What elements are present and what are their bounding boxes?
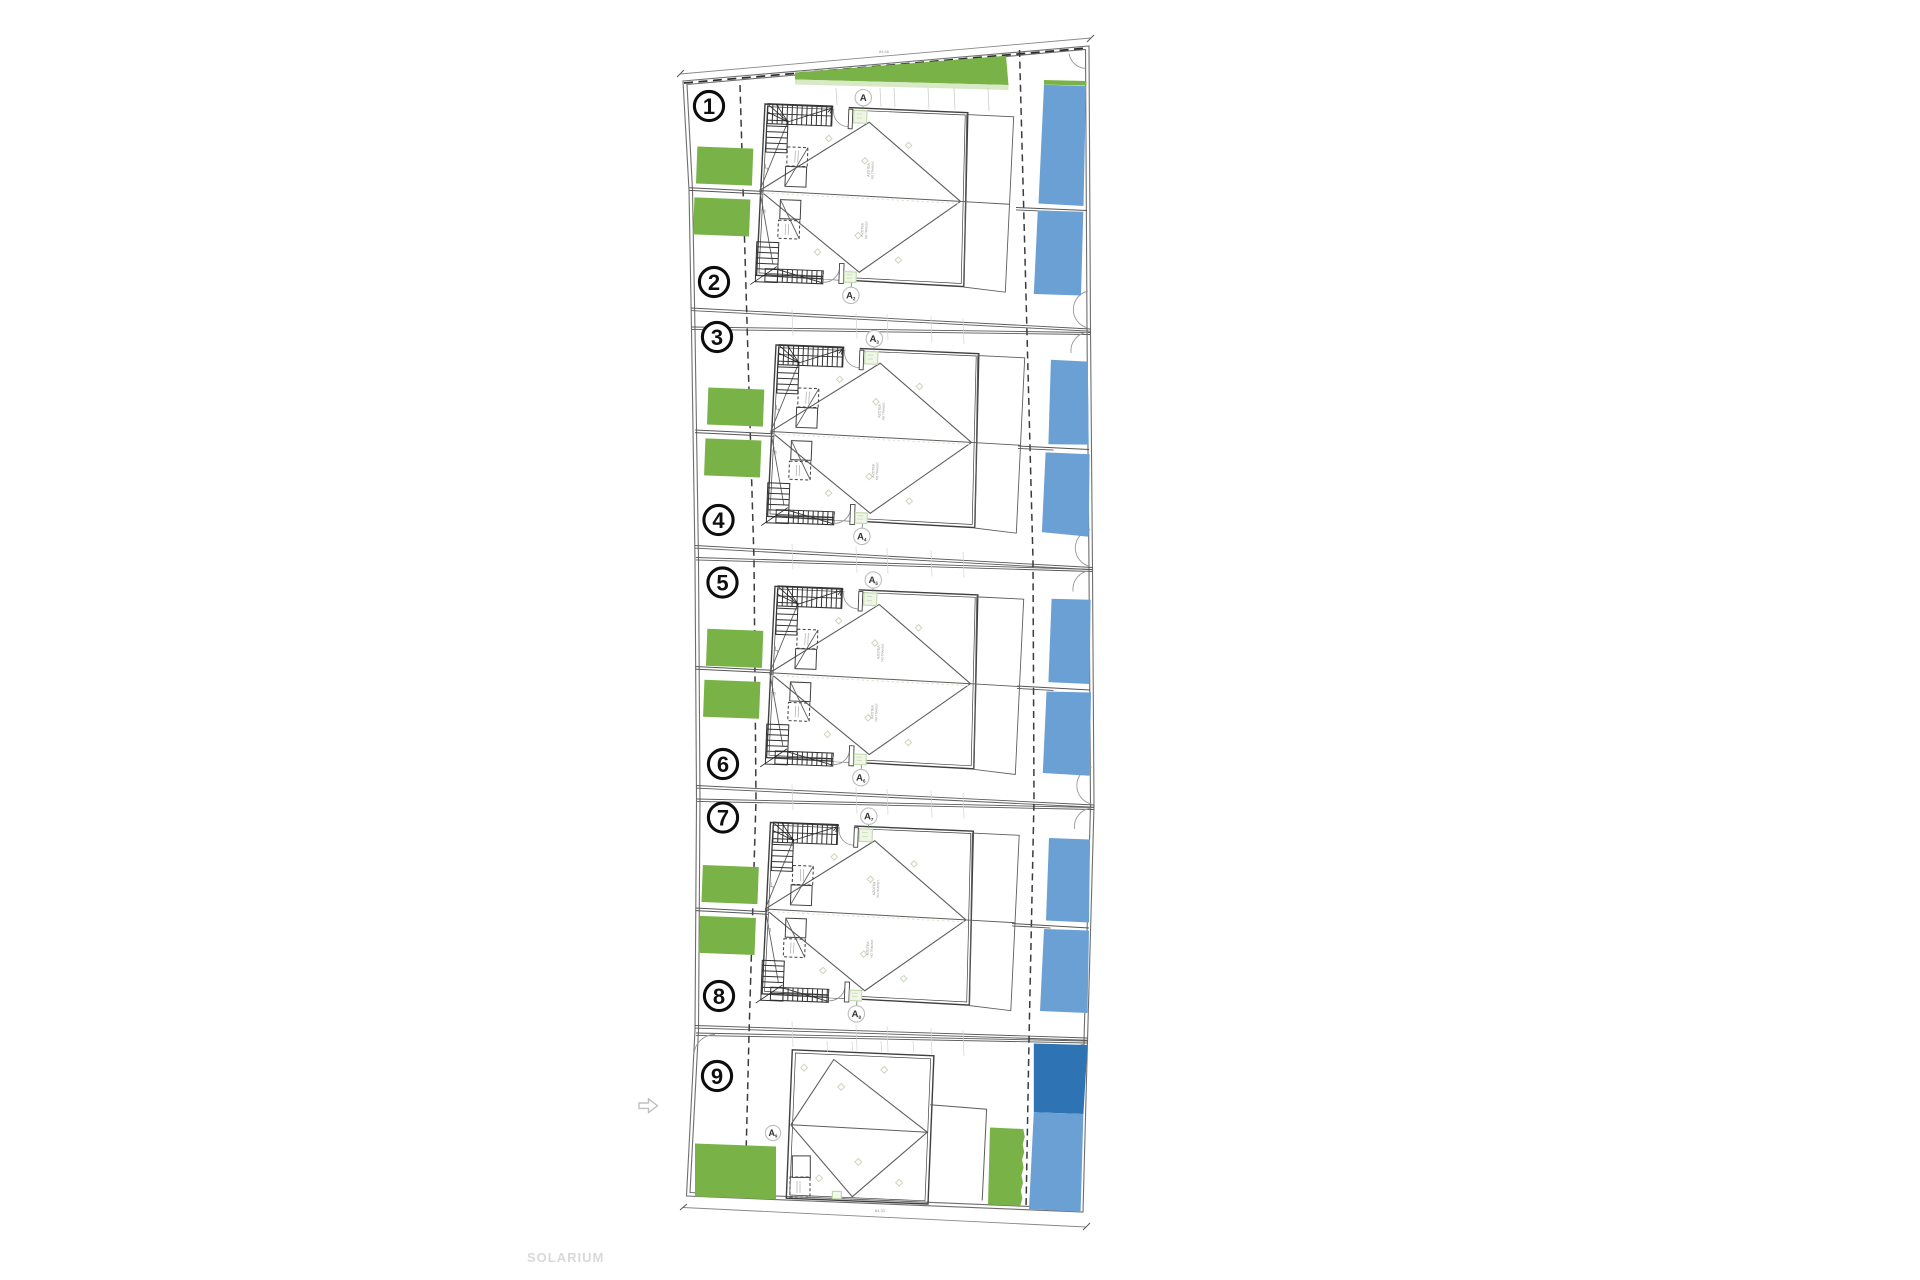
svg-text:1: 1 <box>703 94 715 119</box>
svg-text:NO TRANSIT.: NO TRANSIT. <box>864 220 869 239</box>
svg-text:7: 7 <box>717 805 729 830</box>
svg-text:NO TRANSIT.: NO TRANSIT. <box>875 461 880 480</box>
svg-text:2: 2 <box>708 270 720 295</box>
svg-text:A: A <box>860 93 867 104</box>
svg-text:5: 5 <box>716 570 728 595</box>
svg-text:8: 8 <box>713 984 725 1009</box>
svg-text:84,66: 84,66 <box>879 49 890 54</box>
svg-text:9: 9 <box>711 1064 723 1089</box>
svg-text:4: 4 <box>712 508 725 533</box>
svg-text:3: 3 <box>711 325 723 350</box>
svg-text:SOLARIUM: SOLARIUM <box>527 1250 604 1265</box>
svg-text:NO TRANSIT.: NO TRANSIT. <box>870 939 875 958</box>
svg-text:NO TRANSIT.: NO TRANSIT. <box>880 643 885 662</box>
svg-text:6: 6 <box>717 752 729 777</box>
svg-text:NO TRANSIT.: NO TRANSIT. <box>870 161 875 180</box>
svg-text:NO TRANSIT.: NO TRANSIT. <box>876 879 881 898</box>
svg-text:84,33: 84,33 <box>875 1208 886 1213</box>
svg-text:NO TRANSIT.: NO TRANSIT. <box>881 402 886 421</box>
svg-text:NO TRANSIT.: NO TRANSIT. <box>874 703 879 722</box>
